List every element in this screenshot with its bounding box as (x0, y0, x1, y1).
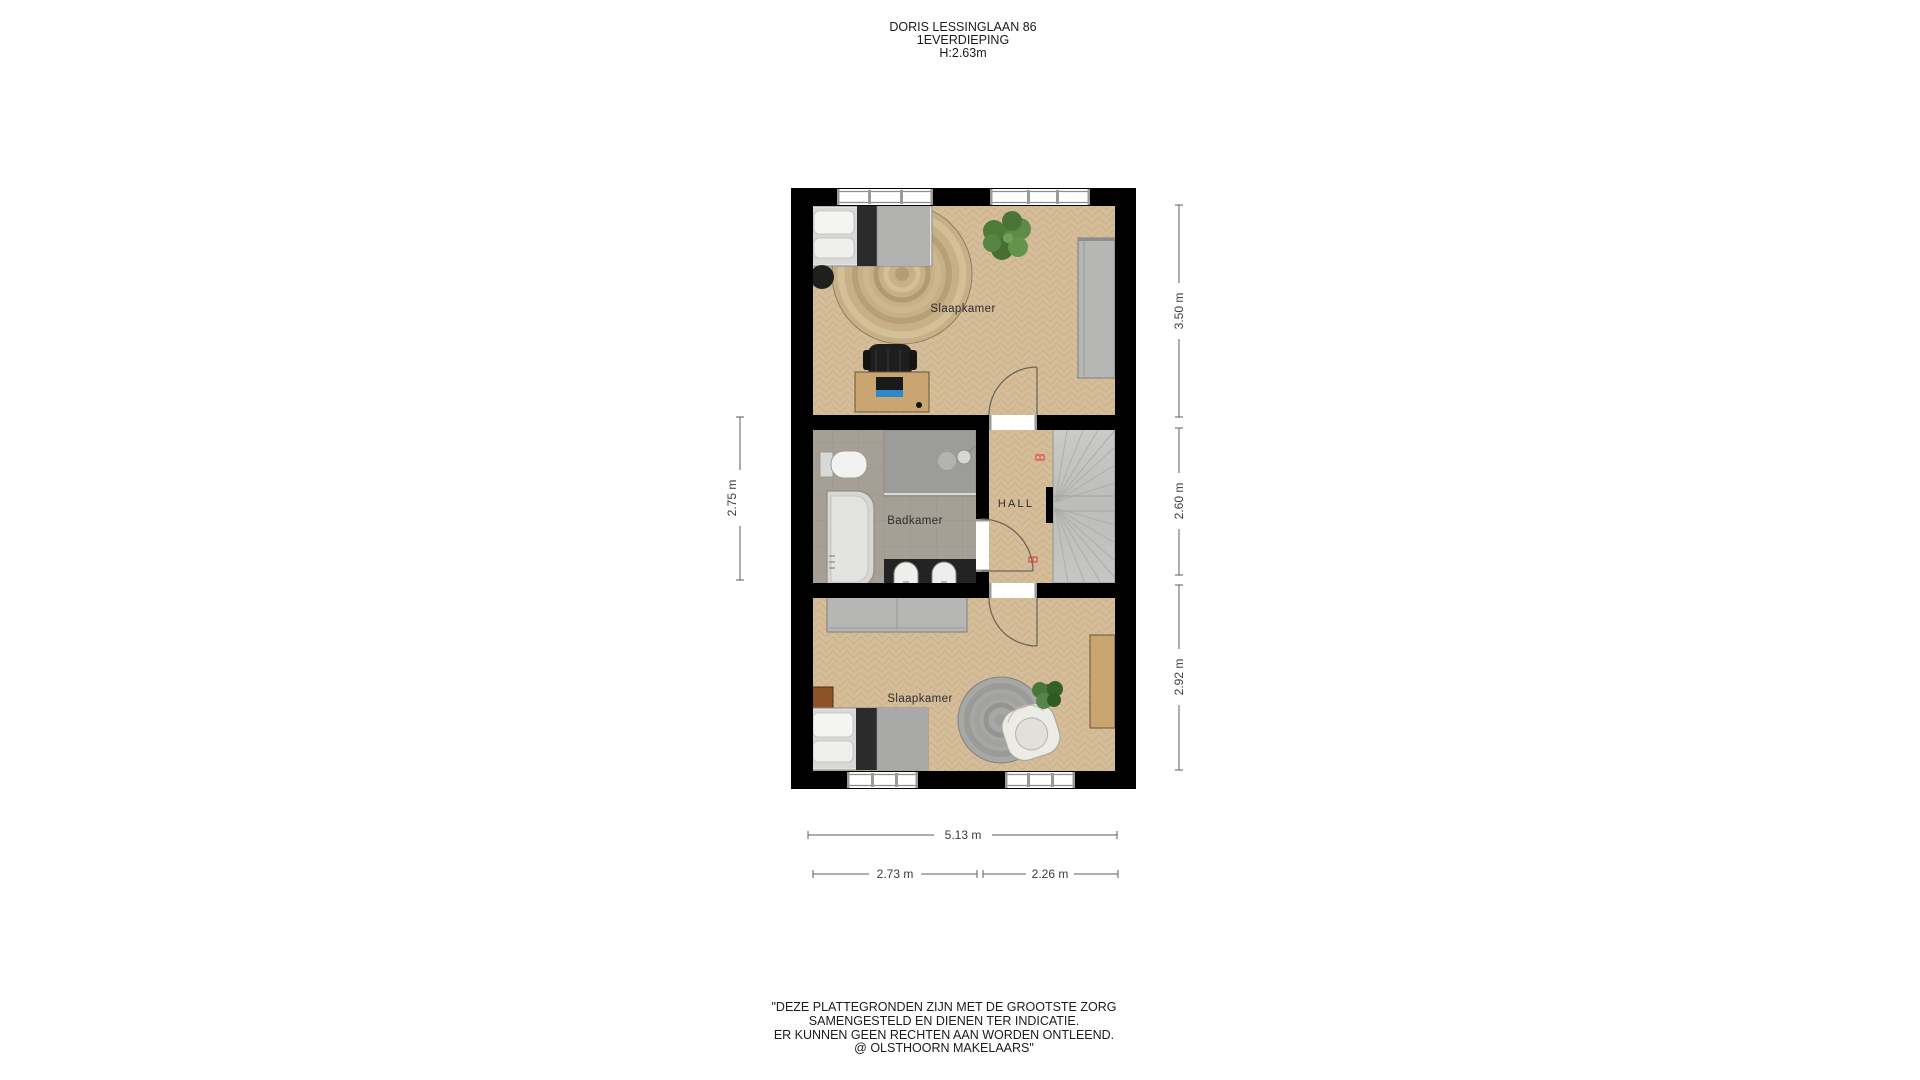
floorplan-drawing: Slaapkamer (0, 0, 1920, 1080)
side-table (810, 265, 834, 289)
winder-staircase (1053, 425, 1115, 583)
wall-mid-upper (813, 415, 1115, 430)
dim-right-middle: 2.60 m (1172, 428, 1186, 575)
disclaimer: "DEZE PLATTEGRONDEN ZIJN MET DE GROOTSTE… (644, 1001, 1244, 1056)
radiator-marker (1028, 556, 1038, 563)
dim-right-top: 3.50 m (1172, 205, 1186, 417)
dim-right-bottom: 2.92 m (1172, 585, 1186, 770)
window (847, 772, 918, 788)
bathroom-label: Badkamer (887, 515, 943, 527)
wardrobe (827, 593, 967, 632)
dim-label-2-92: 2.92 m (1172, 659, 1186, 696)
dim-bottom-left: 2.73 m (813, 867, 977, 881)
toilet (820, 451, 867, 478)
bed (808, 206, 932, 266)
dim-label-2-75: 2.75 m (725, 480, 739, 517)
bedroom-top-label: Slaapkamer (930, 303, 995, 315)
disclaimer-line: ER KUNNEN GEEN RECHTEN AAN WORDEN ONTLEE… (644, 1029, 1244, 1043)
desk (1090, 635, 1115, 728)
dim-left: 2.75 m (725, 417, 744, 580)
wall-right (1115, 188, 1136, 789)
disclaimer-line: "DEZE PLATTEGRONDEN ZIJN MET DE GROOTSTE… (644, 1001, 1244, 1015)
disclaimer-line: SAMENGESTELD EN DIENEN TER INDICATIE. (644, 1015, 1244, 1029)
blanket (877, 206, 930, 266)
wall-bottom (791, 771, 1136, 789)
dim-bottom-total: 5.13 m (808, 828, 1117, 842)
radiator-marker (1035, 454, 1045, 461)
pillow (814, 211, 854, 234)
wardrobe (1078, 238, 1115, 378)
wall-left (791, 188, 813, 789)
bathtub (827, 491, 874, 587)
hall-label: HALL (998, 498, 1034, 510)
pillow (813, 741, 853, 762)
shower-head (957, 450, 971, 464)
blanket-dark-stripe (857, 206, 877, 266)
laptop-screen (876, 390, 903, 397)
dim-label-2-26: 2.26 m (1032, 867, 1069, 881)
window (1005, 772, 1075, 788)
pillow (814, 238, 854, 258)
blanket (877, 708, 928, 770)
dim-label-5-13: 5.13 m (945, 828, 982, 842)
wall-stair-stub (1046, 487, 1053, 523)
double-washbasin (884, 559, 976, 587)
shower (884, 430, 976, 496)
disclaimer-line: @ OLSTHOORN MAKELAARS" (644, 1042, 1244, 1056)
wall-mid-lower (813, 583, 1115, 598)
bedroom-bottom-label: Slaapkamer (887, 693, 952, 705)
floorplan-page: DORIS LESSINGLAAN 86 1EVERDIEPING H:2.63… (0, 0, 1920, 1080)
blanket-dark-stripe (856, 708, 877, 770)
dim-label-2-60: 2.60 m (1172, 483, 1186, 520)
dim-label-3-50: 3.50 m (1172, 293, 1186, 330)
desk (855, 372, 929, 412)
window (837, 189, 933, 205)
shower-drain (938, 452, 956, 470)
dim-label-2-73: 2.73 m (877, 867, 914, 881)
dim-bottom-right: 2.26 m (983, 867, 1118, 881)
laptop (876, 377, 903, 392)
window (990, 189, 1090, 205)
bed (808, 708, 928, 770)
pillow (813, 713, 853, 737)
